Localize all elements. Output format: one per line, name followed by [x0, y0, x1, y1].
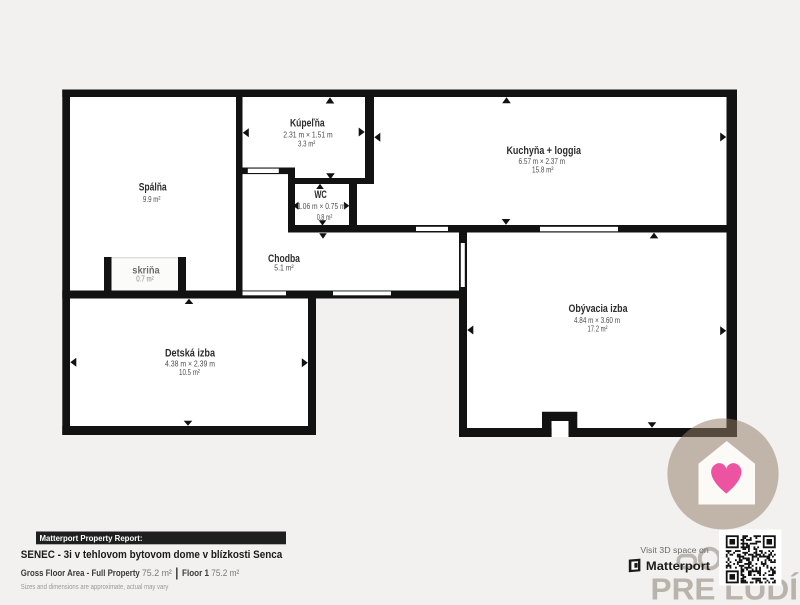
svg-text:Kúpeľňa: Kúpeľňa — [290, 117, 325, 129]
svg-text:0.8 m²: 0.8 m² — [317, 212, 333, 222]
svg-text:75.2 m²: 75.2 m² — [142, 568, 172, 578]
svg-text:SENEC - 3i v tehlovom bytovom: SENEC - 3i v tehlovom bytovom dome v blí… — [21, 549, 283, 561]
svg-text:17.2 m²: 17.2 m² — [588, 324, 608, 334]
svg-text:Sizes and dimensions are appro: Sizes and dimensions are approximate, ac… — [21, 582, 169, 591]
svg-text:Obývacia izba: Obývacia izba — [569, 303, 628, 315]
svg-text:10.5 m²: 10.5 m² — [179, 367, 200, 377]
svg-text:1.06 m × 0.75 m: 1.06 m × 0.75 m — [297, 201, 345, 211]
svg-text:Spálňa: Spálňa — [139, 182, 167, 194]
svg-text:75.2 m²: 75.2 m² — [211, 568, 239, 578]
svg-text:0.7 m²: 0.7 m² — [136, 274, 154, 283]
svg-text:Floor 1: Floor 1 — [182, 568, 209, 578]
svg-text:WC: WC — [314, 189, 327, 201]
svg-text:Matterport Property Report:: Matterport Property Report: — [40, 534, 143, 543]
svg-text:Gross Floor Area - Full Proper: Gross Floor Area - Full Property — [21, 568, 141, 578]
svg-text:5.1 m²: 5.1 m² — [274, 263, 294, 273]
svg-text:Visit 3D space on: Visit 3D space on — [640, 545, 709, 555]
svg-text:Matterport: Matterport — [646, 559, 710, 573]
svg-text:3.3 m²: 3.3 m² — [298, 139, 315, 149]
svg-text:9.9 m²: 9.9 m² — [143, 194, 161, 204]
svg-text:15.8 m²: 15.8 m² — [532, 165, 554, 175]
